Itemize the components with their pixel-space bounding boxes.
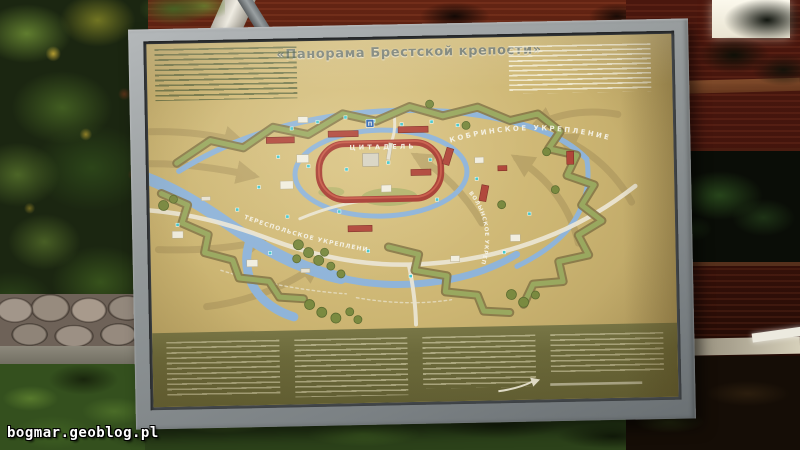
label-kobrin: КОБРИНСКОЕ УКРЕПЛЕНИЕ bbox=[448, 123, 612, 146]
legend-column-2 bbox=[294, 337, 408, 397]
parking-icon: П bbox=[366, 119, 374, 128]
intro-text-block-right bbox=[508, 43, 651, 94]
watermark: bogmar.geoblog.pl bbox=[7, 425, 159, 441]
stone-block-wall bbox=[0, 294, 148, 348]
label-citadel: ЦИТАДЕЛЬ bbox=[349, 142, 416, 151]
legend-band bbox=[152, 323, 678, 408]
map-panel: «Панорама Брестской крепости» bbox=[146, 34, 678, 407]
tree-foliage-overhang bbox=[140, 0, 225, 30]
legend-column-4 bbox=[550, 332, 664, 374]
photo-of-information-board: «Панорама Брестской крепости» bbox=[0, 0, 800, 450]
concrete-path bbox=[0, 346, 150, 366]
intro-text-block-left bbox=[154, 46, 297, 101]
parking-letter: П bbox=[368, 122, 373, 128]
legend-column-1 bbox=[166, 340, 280, 398]
fortress-map: П КОБРИНСКОЕ УКРЕПЛЕНИЕ ТЕРЕСПОЛЬСКОЕ УК… bbox=[147, 91, 676, 332]
legend-direction-arrow bbox=[494, 375, 654, 394]
tree-foliage-left bbox=[0, 0, 148, 336]
information-board: «Панорама Брестской крепости» bbox=[128, 18, 696, 429]
dark-branches bbox=[690, 0, 800, 100]
svg-text:КОБРИНСКОЕ УКРЕПЛЕНИЕ: КОБРИНСКОЕ УКРЕПЛЕНИЕ bbox=[448, 123, 612, 146]
